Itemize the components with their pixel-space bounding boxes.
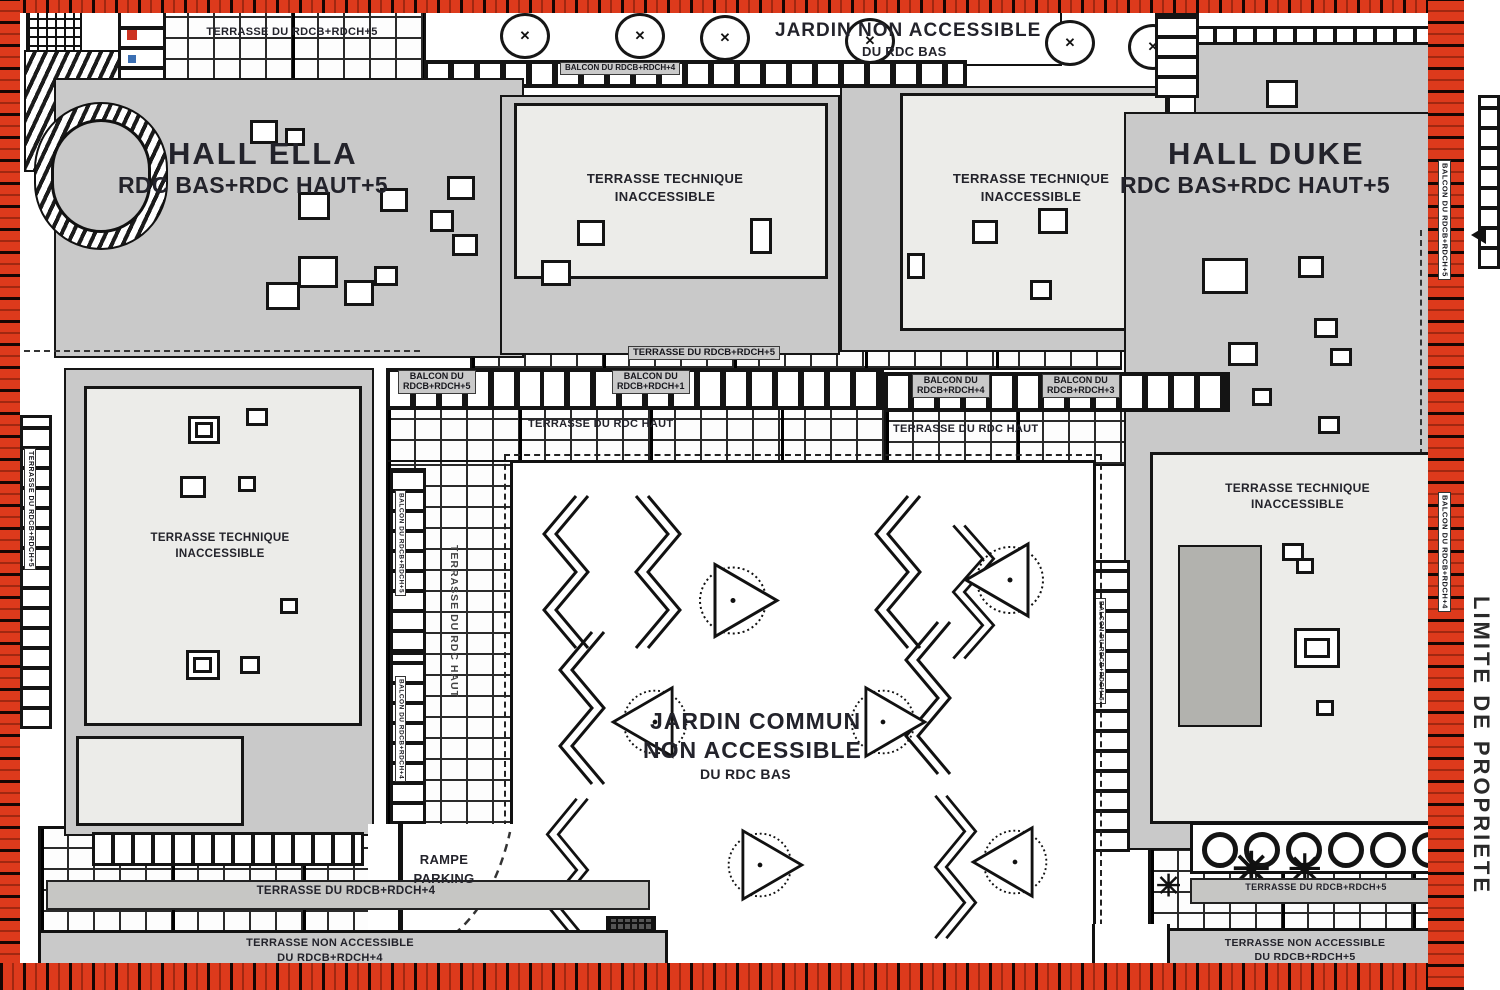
skylight — [750, 218, 772, 254]
balcony-label-line2: RDCB+RDCH+1 — [617, 381, 685, 391]
skylight — [1038, 208, 1068, 234]
garden-tree-icon — [722, 815, 817, 915]
duke-stair-block — [1178, 545, 1262, 727]
roof-plan-canvas: BALCON DU RDCB+RDCH+4 ✕ ✕ ✕ ✕ ✕ ✕ — [0, 0, 1500, 990]
label-duke-tech: TERRASSE TECHNIQUE INACCESSIBLE — [1190, 480, 1405, 512]
label-hall-ella-levels: RDC BAS+RDC HAUT+5 — [118, 172, 388, 199]
skylight — [1298, 256, 1324, 278]
boundary-bottom — [0, 963, 1430, 990]
label-nonacc-bottom-right: TERRASSE NON ACCESSIBLE DU RDCB+RDCH+5 — [1175, 936, 1435, 964]
balcony-label-line1: BALCON DU — [624, 371, 678, 381]
skylight — [195, 422, 213, 438]
tree-mark: ✕ — [1065, 35, 1076, 51]
skylight — [1330, 348, 1352, 366]
label-terrasse-top-left: TERRASSE DU RDCB+RDCH+5 — [158, 26, 426, 38]
skylight — [374, 266, 398, 286]
right-edge-label-top: BALCON DU RDCB+RDCH+5 — [1438, 160, 1451, 280]
balcony-vert-left1-label: BALCON DU RDCB+RDCH+5 — [395, 490, 406, 596]
label-nonacc-bottom-left: TERRASSE NON ACCESSIBLE DU RDCB+RDCH+4 — [120, 936, 540, 966]
balcony-cells-left-bottom — [92, 832, 364, 866]
marker-red — [127, 30, 137, 40]
skylight — [577, 220, 605, 246]
skylight — [447, 176, 475, 200]
label-terrasse-haut-vertical: TERRASSE DU RDC HAUT — [448, 545, 460, 698]
tech-label-line2: INACCESSIBLE — [175, 548, 264, 560]
label-right-tech: TERRASSE TECHNIQUE INACCESSIBLE — [896, 170, 1166, 206]
joint-dashed-duke — [1420, 230, 1422, 455]
left-edge-label: TERRASSE DU RDCB+RDCH+5 — [24, 448, 36, 570]
skylight — [1316, 700, 1334, 716]
tree-icon: ✕ — [615, 13, 665, 59]
skylight — [430, 210, 454, 232]
zigzag-hedge — [540, 795, 595, 945]
skylight — [1318, 416, 1340, 434]
balcony-mid-center-label: BALCON DU RDCB+RDCH+1 — [612, 370, 690, 394]
label-jardin-commun-l2: NON ACCESSIBLE — [643, 737, 862, 764]
skylight — [907, 253, 925, 279]
tech-label-line1: TERRASSE TECHNIQUE — [151, 532, 290, 544]
balcony-mid-right1-label: BALCON DU RDCB+RDCH+4 — [912, 374, 990, 398]
tech-label-line1: TERRASSE TECHNIQUE — [1225, 481, 1370, 495]
balcony-label-line2: RDCB+RDCH+3 — [1047, 385, 1115, 395]
skylight — [344, 280, 374, 306]
skylight — [541, 260, 571, 286]
boundary-top — [0, 0, 1464, 13]
terrace-grid-mid-left — [386, 402, 890, 464]
label-hall-duke: HALL DUKE — [1168, 136, 1365, 172]
zigzag-hedge — [628, 492, 688, 652]
label-terrasse-bottom-left: TERRASSE DU RDCB+RDCH+4 — [46, 885, 646, 897]
left-lower-terrace — [76, 736, 244, 826]
balcony-strip-top-label: BALCON DU RDCB+RDCH+4 — [560, 62, 680, 75]
nonacc-label-line1: TERRASSE NON ACCESSIBLE — [246, 937, 414, 949]
skylight — [246, 408, 268, 426]
tree-mark: ✕ — [720, 30, 731, 46]
label-jardin-commun-l3: DU RDC BAS — [700, 766, 791, 782]
balcony-label-line2: RDCB+RDCH+5 — [403, 381, 471, 391]
skylight — [1202, 258, 1248, 294]
marker-blue — [128, 55, 136, 63]
tech-label-line2: INACCESSIBLE — [1251, 497, 1344, 511]
label-rampe-parking: RAMPE PARKING — [398, 850, 490, 888]
skylight — [180, 476, 206, 498]
label-terrasse-haut-left: TERRASSE DU RDC HAUT — [528, 418, 673, 430]
tech-label-line2: INACCESSIBLE — [981, 189, 1081, 204]
balcony-strip-mid-center — [540, 368, 884, 410]
skylight — [1030, 280, 1052, 300]
balcony-mid-left-label: BALCON DU RDCB+RDCH+5 — [398, 370, 476, 394]
balcony-cells-duke-left — [1155, 12, 1199, 98]
skylight — [238, 476, 256, 492]
garden-tree-icon — [693, 548, 793, 653]
planter-icon — [1370, 832, 1406, 868]
skylight — [1304, 638, 1330, 658]
right-edge-label-mid: BALCON DU RDCB+RDCH+4 — [1438, 492, 1451, 612]
balcony-vert-left2-label: BALCON DU RDCB+RDCH+4 — [395, 676, 406, 782]
label-jardin-top-l1: JARDIN NON ACCESSIBLE — [775, 20, 1041, 42]
balcony-mid-right2-label: BALCON DU RDCB+RDCH+3 — [1042, 374, 1120, 398]
crenellation-top — [1194, 26, 1452, 45]
balcony-label-line1: BALCON DU — [1054, 375, 1108, 385]
label-jardin-commun-l1: JARDIN COMMUN — [650, 708, 861, 735]
skylight — [193, 657, 212, 673]
nonacc-label-line2: DU RDCB+RDCH+5 — [1254, 951, 1355, 963]
tech-label-line1: TERRASSE TECHNIQUE — [587, 171, 743, 186]
nonacc-label-line1: TERRASSE NON ACCESSIBLE — [1225, 937, 1386, 949]
garden-tree-icon — [958, 812, 1053, 912]
skylight — [972, 220, 998, 244]
joint-dashed-left — [14, 350, 420, 352]
skylight — [280, 598, 298, 614]
skylight — [1266, 80, 1298, 108]
balcony-label-line1: BALCON DU — [924, 375, 978, 385]
balcony-label-line2: RDCB+RDCH+4 — [917, 385, 985, 395]
balcony-label-line1: BALCON DU — [410, 371, 464, 381]
tech-label-line2: INACCESSIBLE — [615, 189, 715, 204]
label-central-tech: TERRASSE TECHNIQUE INACCESSIBLE — [520, 170, 810, 206]
skylight — [240, 656, 260, 674]
skylight — [298, 256, 338, 288]
label-terrasse-haut-right: TERRASSE DU RDC HAUT — [893, 423, 1038, 435]
tree-icon: ✕ — [500, 13, 550, 59]
skylight — [1314, 318, 1338, 338]
terrace-grid-top-left — [158, 8, 432, 84]
label-terrasse-bottom-right: TERRASSE DU RDCB+RDCH+5 — [1190, 882, 1442, 892]
garden-tree-icon — [950, 525, 1050, 635]
balcony-vert-right-label: BALCON DU RDCB+RDCH+5 — [1095, 598, 1106, 704]
skylight — [1228, 342, 1258, 366]
nonacc-label-line2: DU RDCB+RDCH+4 — [277, 952, 383, 964]
skylight — [452, 234, 478, 256]
tree-mark: ✕ — [635, 28, 646, 44]
tree-icon: ✕ — [700, 15, 750, 61]
tech-label-line1: TERRASSE TECHNIQUE — [953, 171, 1109, 186]
label-left-tech: TERRASSE TECHNIQUE INACCESSIBLE — [125, 530, 315, 562]
label-hall-ella: HALL ELLA — [168, 136, 358, 172]
conifer-icon: ✳ — [1156, 872, 1181, 902]
tree-mark: ✕ — [520, 28, 531, 44]
label-limite-propriete: LIMITE DE PROPRIETE — [1468, 596, 1494, 895]
skylight — [1252, 388, 1272, 406]
rampe-label-line2: PARKING — [413, 871, 474, 886]
label-terrasse-mid: TERRASSE DU RDCB+RDCH+5 — [628, 346, 780, 360]
rampe-label-line1: RAMPE — [420, 852, 468, 867]
north-arrow-icon — [1462, 226, 1486, 244]
label-jardin-top-l2: DU RDC BAS — [862, 44, 947, 59]
skylight — [266, 282, 300, 310]
skylight — [1296, 558, 1314, 574]
terrace-grid-mid-right — [884, 404, 1130, 466]
boundary-left — [0, 0, 20, 990]
tree-icon: ✕ — [1045, 20, 1095, 66]
planter-icon — [1328, 832, 1364, 868]
